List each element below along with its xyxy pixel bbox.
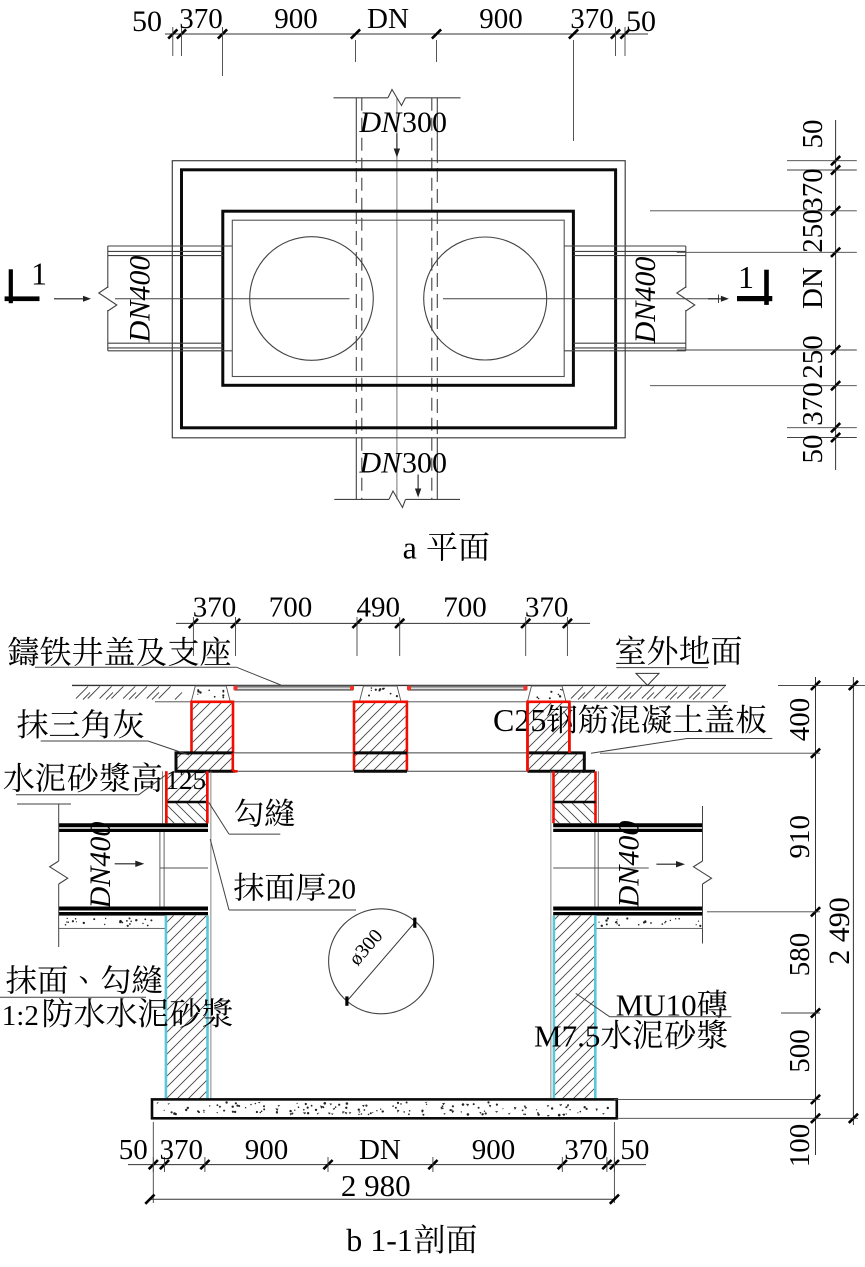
svg-text:1: 1 bbox=[738, 259, 754, 295]
svg-text:DN400: DN400 bbox=[629, 257, 662, 345]
svg-text:C25: C25 bbox=[493, 702, 546, 738]
svg-text:370: 370 bbox=[797, 168, 829, 212]
svg-text:370: 370 bbox=[193, 592, 237, 624]
svg-text:910: 910 bbox=[784, 815, 816, 859]
svg-text:370: 370 bbox=[564, 1134, 608, 1166]
svg-text:125: 125 bbox=[166, 765, 207, 795]
svg-text:2 490: 2 490 bbox=[823, 897, 856, 965]
svg-text:370: 370 bbox=[159, 1134, 203, 1166]
svg-text:DN: DN bbox=[359, 447, 404, 480]
svg-text:DN400: DN400 bbox=[124, 256, 157, 344]
svg-text:370: 370 bbox=[179, 3, 223, 35]
svg-text:700: 700 bbox=[443, 592, 487, 624]
svg-text:50: 50 bbox=[119, 1134, 148, 1166]
svg-text:50: 50 bbox=[797, 435, 829, 464]
svg-text:370: 370 bbox=[797, 382, 829, 426]
svg-text:100: 100 bbox=[784, 1124, 816, 1168]
svg-text:700: 700 bbox=[269, 592, 313, 624]
svg-text:490: 490 bbox=[357, 592, 401, 624]
svg-text:50: 50 bbox=[797, 120, 829, 149]
svg-text:300: 300 bbox=[402, 106, 447, 139]
svg-text:a: a bbox=[403, 530, 417, 566]
svg-text:DN400: DN400 bbox=[613, 821, 646, 909]
svg-text:1:2: 1:2 bbox=[2, 1000, 39, 1032]
svg-text:250: 250 bbox=[797, 335, 829, 379]
svg-text:400: 400 bbox=[784, 698, 816, 742]
svg-text:900: 900 bbox=[472, 1134, 516, 1166]
svg-text:50: 50 bbox=[620, 1134, 649, 1166]
svg-text:900: 900 bbox=[274, 3, 318, 35]
svg-text:370: 370 bbox=[570, 3, 614, 35]
svg-text:1: 1 bbox=[31, 256, 47, 292]
svg-text:250: 250 bbox=[797, 209, 829, 253]
svg-text:50: 50 bbox=[626, 5, 656, 38]
svg-text:M7.5: M7.5 bbox=[534, 1019, 600, 1054]
svg-text:300: 300 bbox=[402, 447, 447, 480]
svg-text:50: 50 bbox=[132, 5, 162, 38]
svg-text:2 980: 2 980 bbox=[341, 1168, 411, 1203]
svg-text:DN: DN bbox=[367, 3, 409, 35]
svg-text:900: 900 bbox=[479, 3, 523, 35]
svg-text:b 1-1: b 1-1 bbox=[346, 1222, 413, 1258]
svg-text:DN: DN bbox=[359, 106, 404, 139]
svg-text:370: 370 bbox=[525, 592, 569, 624]
svg-text:DN400: DN400 bbox=[84, 822, 117, 910]
svg-text:500: 500 bbox=[784, 1029, 816, 1073]
svg-text:900: 900 bbox=[245, 1134, 289, 1166]
svg-text:DN: DN bbox=[797, 267, 829, 309]
svg-text:ø300: ø300 bbox=[345, 925, 388, 970]
svg-text:20: 20 bbox=[327, 874, 356, 906]
svg-text:DN: DN bbox=[359, 1134, 401, 1166]
svg-text:580: 580 bbox=[784, 933, 816, 977]
